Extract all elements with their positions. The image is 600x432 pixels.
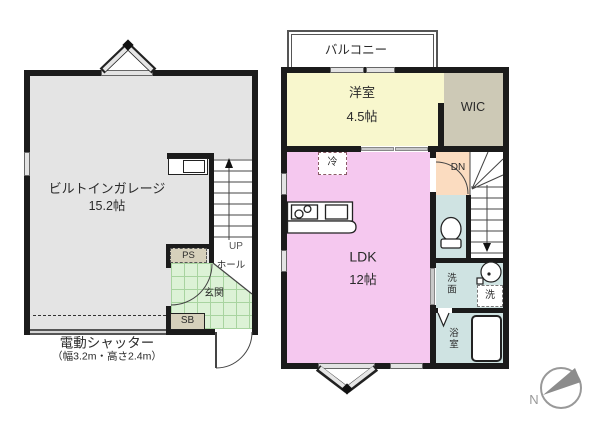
floorplan-canvas: PS SB 冷 洗 xyxy=(0,0,600,432)
bathroom-label: 浴室 xyxy=(445,328,459,351)
compass-north-label: N xyxy=(529,392,538,408)
stairs-2f-down-arrow xyxy=(483,243,491,252)
ldk-label: LDK xyxy=(349,248,376,266)
wall-1f-left xyxy=(24,76,30,335)
gable-mark-1f xyxy=(102,39,154,71)
window-2f-left-upper xyxy=(281,173,287,195)
sliding-door-ldk-west-2 xyxy=(395,147,428,151)
garage-room-label: ビルトインガレージ xyxy=(49,181,166,197)
washing-machine-box: 洗 xyxy=(477,285,503,307)
ldk-size-label: 12帖 xyxy=(349,272,376,288)
wic-label: WIC xyxy=(461,100,485,116)
up-label: UP xyxy=(229,241,243,254)
pipe-space-box: PS xyxy=(170,248,207,263)
window-2f-bottom-gable xyxy=(318,363,375,369)
wall-2f-right xyxy=(503,73,509,369)
pipe-space-label: PS xyxy=(182,250,195,262)
washing-machine-label: 洗 xyxy=(485,290,495,303)
wall-2f-bath-top-a xyxy=(430,308,438,313)
wall-2f-ldk-right-c xyxy=(430,305,436,363)
window-1f-left xyxy=(24,152,30,176)
dn-label: DN xyxy=(451,162,465,175)
garage-shutter-band xyxy=(30,329,166,335)
wall-2f-mid-right xyxy=(428,146,509,152)
shutter-dashed-line xyxy=(33,315,166,316)
window-2f-balcony-2 xyxy=(366,67,395,73)
garage-size-label: 15.2帖 xyxy=(89,199,126,215)
entrance-label: 玄関 xyxy=(204,288,224,301)
wall-1f-right xyxy=(252,76,258,335)
compass-icon xyxy=(541,368,581,408)
bathtub-icon xyxy=(471,315,502,362)
front-door-arc xyxy=(216,332,252,368)
western-room-label: 洋室 xyxy=(349,85,375,101)
window-2f-left-lower xyxy=(281,250,287,272)
window-2f-balcony-1 xyxy=(330,67,364,73)
sliding-door-ldk-washroom xyxy=(430,268,435,305)
stairs-2f-icon xyxy=(470,152,503,253)
window-1f-top-gable xyxy=(101,70,153,76)
western-room-size-label: 4.5帖 xyxy=(346,109,377,125)
wall-2f-bath-top-b xyxy=(452,308,509,313)
refrigerator-label: 冷 xyxy=(328,157,338,170)
shoe-box-label: SB xyxy=(181,315,194,328)
toilet-room-area xyxy=(436,195,466,258)
window-2f-bottom xyxy=(390,363,423,369)
hall-label: ホール xyxy=(217,260,246,272)
shutter-spec-label: （幅3.2m・高さ2.4m） xyxy=(52,350,162,363)
cabinet-1f-inner xyxy=(183,160,205,173)
gable-mark-2f xyxy=(318,368,376,395)
balcony-label: バルコニー xyxy=(325,43,387,59)
shoe-box: SB xyxy=(170,313,205,330)
wall-2f-toilet-stairs xyxy=(466,195,471,258)
wall-2f-ldk-right-b xyxy=(430,192,436,268)
wall-2f-wic-left xyxy=(438,103,444,146)
washroom-label: 洗面 xyxy=(443,273,457,296)
wall-2f-left xyxy=(281,73,287,369)
wall-2f-washroom-top xyxy=(430,258,509,263)
wall-2f-top xyxy=(281,67,509,73)
wall-2f-ldk-right-a xyxy=(430,146,436,158)
sliding-door-ldk-west-1 xyxy=(361,147,394,151)
refrigerator-box: 冷 xyxy=(318,152,347,175)
